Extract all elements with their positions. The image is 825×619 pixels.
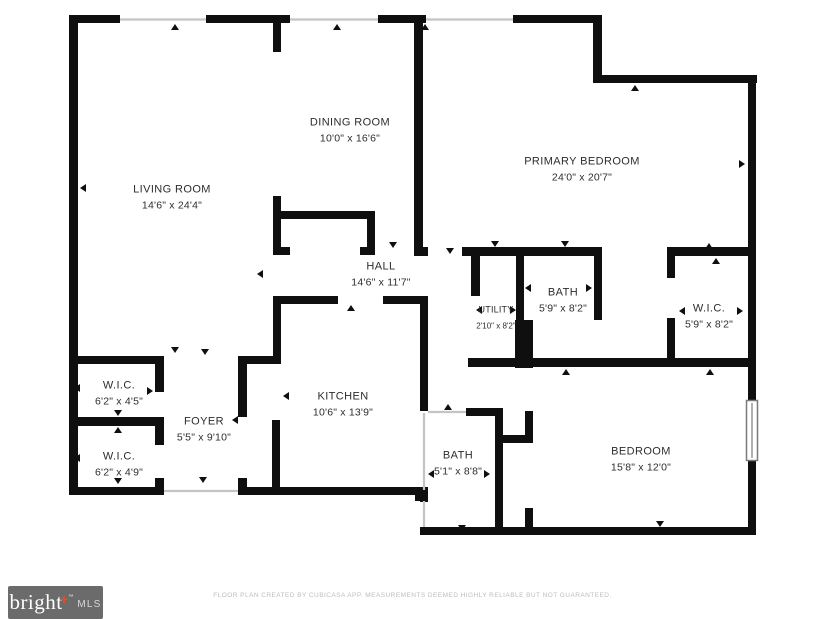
floorplan-disclaimer: FLOOR PLAN CREATED BY CUBICASA APP. MEAS… [0,592,825,599]
wall-segment [414,247,428,256]
wall-segment [69,487,164,495]
room-name-hall: HALL [351,260,410,275]
room-dims-bath-lower: 5'1" x 8'8" [434,465,482,480]
wall-segment [525,508,533,535]
room-label-hall: HALL 14'6" x 11'7" [351,260,410,291]
room-label-foyer: FOYER 5'5" x 9'10" [177,415,231,446]
room-label-wic-right: W.I.C. 5'9" x 8'2" [685,302,733,333]
measurement-tick-icon [561,241,569,247]
room-dims-bedroom: 15'8" x 12'0" [611,461,671,476]
wall-segment [414,22,423,255]
room-label-wic-lower-left: W.I.C. 6'2" x 4'9" [95,450,143,481]
measurement-tick-icon [444,404,452,410]
wall-segment [667,318,675,358]
wall-segment [667,256,675,278]
wall-segment [238,356,281,364]
wall-segment [69,417,164,426]
wall-segment [378,15,426,23]
measurement-tick-icon [114,427,122,433]
room-dims-kitchen: 10'6" x 13'9" [313,406,373,421]
measurement-tick-icon [562,369,570,375]
wall-segment [272,420,280,487]
room-dims-living-room: 14'6" x 24'4" [133,199,211,214]
wall-segment [69,356,163,364]
measurement-tick-icon [525,284,531,292]
wall-segment [273,196,281,255]
measurement-tick-icon [631,85,639,91]
measurement-tick-icon [199,477,207,483]
wall-segment [593,75,757,83]
wall-segment [462,247,602,256]
room-dims-foyer: 5'5" x 9'10" [177,431,231,446]
room-name-wic-upper-left: W.I.C. [95,379,143,394]
measurement-tick-icon [201,349,209,355]
wall-segment [748,460,756,535]
room-label-bath-upper: BATH 5'9" x 8'2" [539,286,587,317]
wall-segment [420,527,756,535]
measurement-tick-icon [333,24,341,30]
wall-segment [238,478,247,495]
wall-segment [273,247,290,255]
measurement-tick-icon [656,521,664,527]
measurement-tick-icon [283,392,289,400]
room-label-utility: UTILITY 2'10" x 8'2" [476,303,515,334]
room-dims-wic-upper-left: 6'2" x 4'5" [95,395,143,410]
room-name-foyer: FOYER [177,415,231,430]
wall-segment [525,411,533,443]
room-dims-wic-right: 5'9" x 8'2" [685,318,733,333]
measurement-tick-icon [491,241,499,247]
wall-segment [594,256,602,320]
room-label-living-room: LIVING ROOM 14'6" x 24'4" [133,183,211,214]
measurement-tick-icon [446,248,454,254]
wall-segment [273,20,281,52]
measurement-tick-icon [712,258,720,264]
measurement-tick-icon [484,470,490,478]
measurement-tick-icon [739,160,745,168]
brightmls-logo: bright+™MLS [8,586,103,619]
room-label-primary-bedroom: PRIMARY BEDROOM 24'0" x 20'7" [524,155,640,186]
wall-segment [593,15,602,83]
room-name-wic-right: W.I.C. [685,302,733,317]
room-dims-utility: 2'10" x 8'2" [476,319,515,334]
wall-segment [238,364,247,417]
wall-segment [273,296,281,356]
room-name-bath-upper: BATH [539,286,587,301]
room-label-kitchen: KITCHEN 10'6" x 13'9" [313,390,373,421]
room-name-utility: UTILITY [476,303,515,318]
wall-segment [238,487,420,495]
room-label-bath-lower: BATH 5'1" x 8'8" [434,449,482,480]
room-name-bedroom: BEDROOM [611,445,671,460]
wall-segment [516,256,524,320]
room-name-kitchen: KITCHEN [313,390,373,405]
floorplan-page: LIVING ROOM 14'6" x 24'4" DINING ROOM 10… [0,0,825,619]
room-name-primary-bedroom: PRIMARY BEDROOM [524,155,640,170]
measurement-tick-icon [347,305,355,311]
room-dims-primary-bedroom: 24'0" x 20'7" [524,171,640,186]
measurement-tick-icon [80,184,86,192]
wall-segment [513,15,601,23]
wall-segment [69,15,120,23]
wall-segment [155,478,164,494]
measurement-tick-icon [232,416,238,424]
measurement-tick-icon [389,242,397,248]
measurement-tick-icon [147,387,153,395]
measurement-tick-icon [171,347,179,353]
wall-segment [273,211,375,219]
room-label-dining-room: DINING ROOM 10'0" x 16'6" [310,116,390,147]
wall-segment [495,408,503,535]
measurement-tick-icon [705,243,713,249]
room-dims-dining-room: 10'0" x 16'6" [310,132,390,147]
wall-segment [748,75,756,401]
wall-segment [420,490,428,502]
measurement-tick-icon [171,24,179,30]
wall-segment [155,426,164,445]
wall-segment [420,296,428,411]
wall-segment [155,356,164,392]
room-name-wic-lower-left: W.I.C. [95,450,143,465]
measurement-tick-icon [706,369,714,375]
measurement-tick-icon [114,410,122,416]
room-name-living-room: LIVING ROOM [133,183,211,198]
wall-segment [360,247,375,255]
wall-segment [471,256,480,296]
measurement-tick-icon [257,270,263,278]
room-dims-wic-lower-left: 6'2" x 4'9" [95,466,143,481]
room-label-bedroom: BEDROOM 15'8" x 12'0" [611,445,671,476]
room-name-bath-lower: BATH [434,449,482,464]
wall-segment [468,358,750,367]
wall-segment [273,296,338,304]
room-dims-bath-upper: 5'9" x 8'2" [539,302,587,317]
room-label-wic-upper-left: W.I.C. 6'2" x 4'5" [95,379,143,410]
measurement-tick-icon [737,307,743,315]
room-name-dining-room: DINING ROOM [310,116,390,131]
room-dims-hall: 14'6" x 11'7" [351,276,410,291]
brightmls-logo-mls: MLS [77,599,101,610]
